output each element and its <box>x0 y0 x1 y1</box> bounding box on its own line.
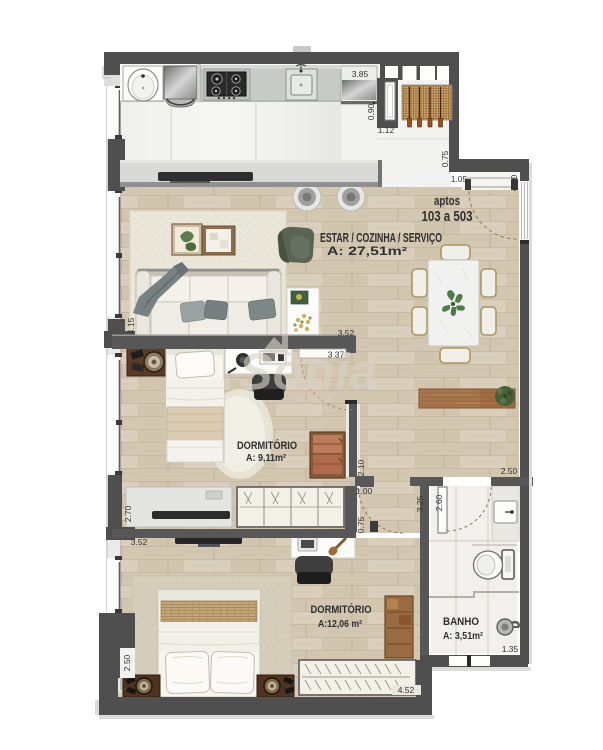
svg-text:1.00: 1.00 <box>356 486 373 496</box>
svg-text:ESTAR / COZINHA / SERVIÇO: ESTAR / COZINHA / SERVIÇO <box>320 231 442 245</box>
svg-text:DORMITÓRIO: DORMITÓRIO <box>237 439 297 452</box>
svg-text:103 a 503: 103 a 503 <box>422 209 473 225</box>
svg-text:3.52: 3.52 <box>131 537 148 547</box>
svg-text:4.15: 4.15 <box>126 317 136 334</box>
svg-text:0.75: 0.75 <box>356 516 366 533</box>
svg-text:0.90: 0.90 <box>366 103 376 120</box>
svg-text:4.52: 4.52 <box>398 685 415 695</box>
svg-text:CRECI 20.334 J: CRECI 20.334 J <box>287 407 338 414</box>
svg-text:0.75: 0.75 <box>440 150 450 167</box>
svg-text:4.60: 4.60 <box>509 174 519 191</box>
svg-text:imóveis: imóveis <box>288 390 333 405</box>
svg-text:BANHO: BANHO <box>443 616 479 628</box>
svg-text:2.10: 2.10 <box>356 459 366 476</box>
svg-text:3.85: 3.85 <box>352 69 369 79</box>
svg-text:2.70: 2.70 <box>123 505 133 522</box>
svg-text:1.12: 1.12 <box>378 125 395 135</box>
svg-text:aptos: aptos <box>434 194 460 208</box>
svg-text:2.60: 2.60 <box>434 494 444 511</box>
svg-text:A: 3,51m²: A: 3,51m² <box>443 630 483 642</box>
svg-text:3.52: 3.52 <box>338 328 355 338</box>
svg-text:A: 9,11m²: A: 9,11m² <box>246 452 286 464</box>
svg-text:A:12,06 m²: A:12,06 m² <box>318 618 362 630</box>
svg-text:DORMITÓRIO: DORMITÓRIO <box>311 603 372 616</box>
svg-text:A: 27,51m²: A: 27,51m² <box>327 246 407 258</box>
svg-text:1.35: 1.35 <box>502 644 519 654</box>
svg-text:3.25: 3.25 <box>415 495 425 512</box>
svg-text:1.05: 1.05 <box>451 174 468 184</box>
svg-text:2.50: 2.50 <box>122 654 132 671</box>
svg-text:2.50: 2.50 <box>501 466 518 476</box>
